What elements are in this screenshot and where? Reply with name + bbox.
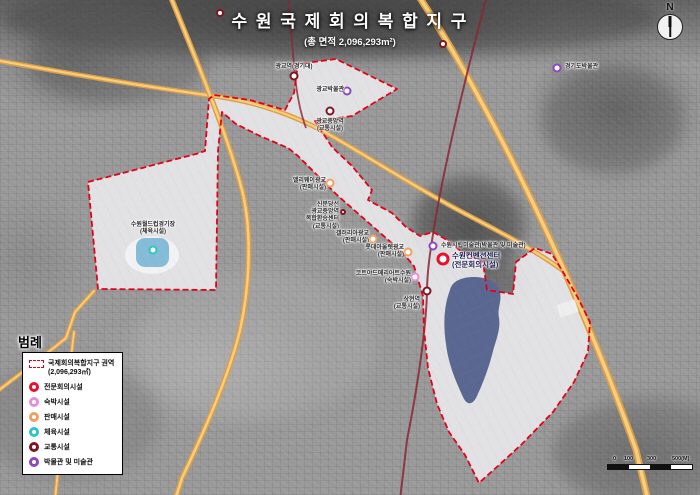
gwanggyo-jungang-station-marker[interactable] (326, 107, 335, 116)
legend-area-label: 국제회의복합지구 권역 (48, 360, 114, 367)
sanghyeon-station-label: 상현역(교통시설) (368, 297, 420, 311)
north-arrow: N (653, 3, 687, 40)
legend-item-transport: 교통시설 (29, 442, 117, 452)
label-line: 수원컨벤션센터 (452, 251, 532, 260)
label-line: (판매시설) (355, 252, 404, 259)
legend-area-sublabel: (2,096,293㎡) (48, 369, 91, 376)
legend-item-label: 체육시설 (44, 427, 70, 437)
label-line: (판매시설) (282, 185, 326, 192)
gwanggyo-station-marker[interactable] (290, 72, 299, 81)
page-subtitle: (총 면적 2,096,293m²) (0, 34, 700, 48)
page-title: 수 원 국 제 회 의 복 합 지 구 (0, 7, 700, 32)
label-line: (전문회의시설) (452, 260, 532, 269)
conference-marker-icon (29, 382, 39, 392)
scale-tick-100: 100 (624, 456, 633, 462)
gwanggyo-museum-label: 광교박물관 (299, 87, 344, 94)
gwanggyo-station-label: 광교역(경기대) (258, 64, 330, 71)
label-line: 광교박물관 (299, 87, 344, 94)
galleria-gwanggyo-marker[interactable] (369, 235, 378, 244)
legend-item-district-area: 국제회의복합지구 권역 (2,096,293㎡) (29, 359, 117, 377)
suwon-art-museum-label: 수원시립미술관(박물관 및 미술관) (441, 243, 553, 250)
museum-marker-icon (29, 457, 39, 467)
lotte-outlet-gwanggyo-marker[interactable] (404, 248, 413, 257)
legend: 국제회의복합지구 권역 (2,096,293㎡) 전문회의시설숙박시설판매시설체… (22, 352, 123, 475)
label-line: (체육시설) (108, 229, 198, 236)
transfer-center-label: 신분당선광교중앙역복합환승센터(교통시설) (293, 202, 339, 231)
legend-item-label: 숙박시설 (44, 397, 70, 407)
sports-marker-icon (29, 427, 39, 437)
courtyard-marriott-marker[interactable] (411, 273, 420, 282)
compass-needle-tail (669, 27, 671, 37)
alleyway-gwanggyo-marker[interactable] (326, 179, 335, 188)
legend-item-label: 판매시설 (44, 412, 70, 422)
legend-item-conference: 전문회의시설 (29, 382, 117, 392)
compass-dial (657, 14, 683, 40)
gyeonggi-museum-marker[interactable] (553, 64, 562, 73)
worldcup-stadium-marker[interactable] (149, 246, 158, 255)
scale-tick-500(M): 500(M) (672, 456, 689, 462)
label-line: (교통시설) (293, 224, 339, 231)
scale-tick-labels: 0100300500(M) (607, 456, 693, 463)
label-line: 수원시립미술관(박물관 및 미술관) (441, 243, 553, 250)
suwon-art-museum-marker[interactable] (429, 242, 438, 251)
legend-item-sports: 체육시설 (29, 427, 117, 437)
courtyard-marriott-label: 코트야드메리어트수원(숙박시설) (339, 271, 411, 285)
gwanggyo-jungang-station-label: 광교중앙역(교통시설) (300, 119, 360, 133)
map-title-block: 수 원 국 제 회 의 복 합 지 구 (총 면적 2,096,293m²) (0, 7, 700, 48)
scale-tick-0: 0 (613, 456, 616, 462)
alleyway-gwanggyo-label: 앨리웨이광교(판매시설) (282, 178, 326, 192)
legend-title: 범례 (18, 332, 42, 351)
legend-item-retail: 판매시설 (29, 412, 117, 422)
label-line: (교통시설) (368, 304, 420, 311)
legend-area-text: 국제회의복합지구 권역 (2,096,293㎡) (48, 359, 114, 377)
map-poster: 수 원 국 제 회 의 복 합 지 구 (총 면적 2,096,293m²) N… (0, 0, 700, 495)
transfer-center-marker[interactable] (340, 209, 346, 215)
gyeonggi-museum-label: 경기도박물관 (565, 64, 625, 71)
lotte-outlet-gwanggyo-label: 롯데아울렛광교(판매시설) (355, 245, 404, 259)
label-line: 복합환승센터 (293, 216, 339, 223)
label-line: (교통시설) (300, 126, 360, 133)
compass-needle-icon (669, 16, 672, 27)
scale-bar: 0100300500(M) (607, 456, 693, 470)
galleria-gwanggyo-label: 갤러리아광교(판매시설) (330, 231, 369, 245)
transport-marker-icon (29, 442, 39, 452)
legend-item-label: 박물관 및 미술관 (44, 457, 93, 467)
scale-segment (671, 465, 692, 469)
scale-segment (608, 465, 629, 469)
scale-segment (629, 465, 650, 469)
label-line: (숙박시설) (339, 278, 411, 285)
scale-segment (650, 465, 671, 469)
scale-bar-graphic (607, 464, 693, 470)
retail-marker-icon (29, 412, 39, 422)
legend-item-museum: 박물관 및 미술관 (29, 457, 117, 467)
lodging-marker-icon (29, 397, 39, 407)
legend-item-lodging: 숙박시설 (29, 397, 117, 407)
suwon-convention-center-marker[interactable] (437, 253, 450, 266)
sanghyeon-station-marker[interactable] (423, 287, 432, 296)
worldcup-stadium-label: 수원월드컵경기장(체육시설) (108, 222, 198, 236)
label-line: 경기도박물관 (565, 64, 625, 71)
legend-item-label: 교통시설 (44, 442, 70, 452)
suwon-convention-center-label: 수원컨벤션센터(전문회의시설) (452, 251, 532, 269)
legend-items: 전문회의시설숙박시설판매시설체육시설교통시설박물관 및 미술관 (29, 382, 117, 467)
label-line: 광교역(경기대) (258, 64, 330, 71)
north-label: N (653, 3, 687, 13)
district-area-swatch-icon (29, 360, 44, 368)
scale-tick-300: 300 (647, 456, 656, 462)
legend-item-label: 전문회의시설 (44, 382, 83, 392)
